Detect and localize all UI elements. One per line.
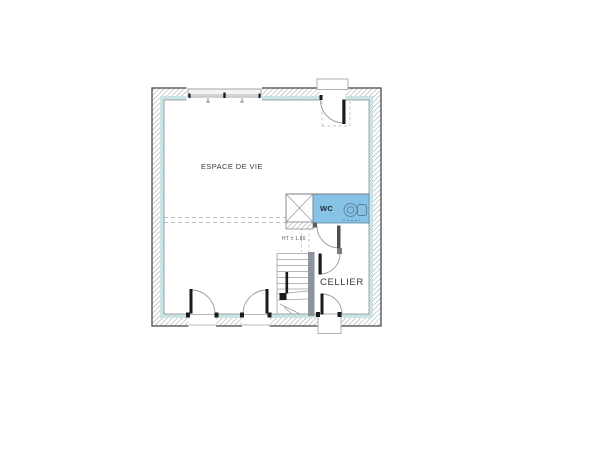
cellar-exterior-door-leaf	[321, 294, 324, 315]
cellar-door-leaf	[319, 254, 322, 275]
french-door-left-leaf	[190, 289, 193, 314]
french-door-left	[186, 289, 219, 327]
mezzanine-edge-dashed-lines	[164, 218, 286, 223]
floorplan-canvas: ESPACE DE VIE WC CELLIER HT ± 1.80	[0, 0, 600, 450]
stair-newel-post	[280, 293, 287, 300]
cellar-exterior-door	[316, 294, 342, 334]
entrance-door-leaf	[342, 100, 345, 125]
wc-door	[313, 223, 341, 249]
living-room-label: ESPACE DE VIE	[201, 162, 263, 171]
wc-door-leaf	[337, 226, 341, 249]
wc-label: WC	[320, 204, 333, 213]
staircase	[277, 252, 315, 316]
french-door-right-leaf	[266, 289, 269, 314]
french-door-right	[240, 289, 272, 327]
cellar-door	[319, 248, 343, 275]
floorplan-drawing	[0, 0, 600, 450]
stair-height-note: HT ± 1.80	[282, 236, 306, 242]
technical-shaft	[286, 194, 313, 229]
stair-wall	[308, 252, 315, 316]
window-top	[187, 87, 263, 102]
cellar-label: CELLIER	[320, 277, 364, 288]
understair-wall	[286, 272, 289, 294]
